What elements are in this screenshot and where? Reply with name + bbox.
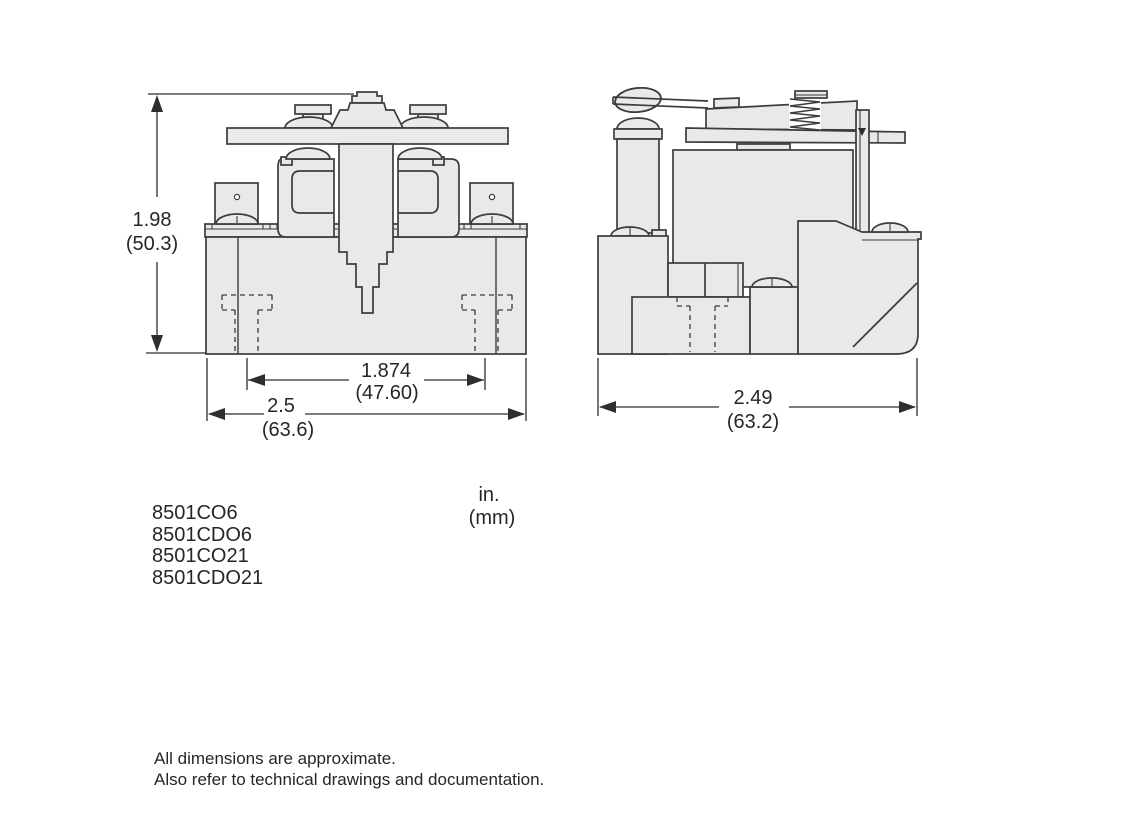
- middle-block: [745, 278, 798, 354]
- right-block: [798, 221, 921, 354]
- bracket-screw-left: [286, 148, 330, 159]
- dim-label-slot-mm: (47.60): [355, 382, 418, 404]
- crossbar: [227, 128, 508, 144]
- arrowhead-left: [599, 401, 616, 413]
- center-cam: [331, 103, 403, 128]
- front-view: [205, 92, 527, 354]
- washer-dome-right: [400, 117, 448, 128]
- model-list: 8501CO6 8501CDO6 8501CO21 8501CDO21: [152, 502, 263, 589]
- footnotes: All dimensions are approximate. Also ref…: [154, 749, 544, 789]
- units-mm: (mm): [469, 507, 516, 529]
- cylinder-post: [614, 118, 662, 233]
- footnote-line: Also refer to technical drawings and doc…: [154, 770, 544, 789]
- dim-label-width-in: 2.5: [267, 395, 295, 417]
- model-number: 8501CO6: [152, 502, 238, 524]
- arrowhead-left: [208, 408, 225, 420]
- contact-bracket-left: [278, 148, 334, 237]
- dimension-drawing: 1.98 (50.3) 1.874 (47.60) 2.5 (63.6) 2.4…: [0, 0, 1145, 815]
- dim-label-width-mm: (63.6): [262, 419, 314, 441]
- dim-label-depth-mm: (63.2): [727, 411, 779, 433]
- arrowhead-right: [508, 408, 525, 420]
- arrowhead-down: [151, 335, 163, 352]
- terminal-box: [668, 263, 743, 297]
- arrowhead-right: [467, 374, 484, 386]
- side-view: [598, 86, 921, 354]
- footnote-line: All dimensions are approximate.: [154, 749, 396, 768]
- model-number: 8501CO21: [152, 545, 249, 567]
- bracket-screw-right: [398, 148, 442, 159]
- model-number: 8501CDO6: [152, 524, 252, 546]
- armature-tab: [714, 98, 739, 108]
- front-base-block: [632, 297, 750, 354]
- dim-label-height-mm: (50.3): [126, 233, 178, 255]
- dim-label-slot-in: 1.874: [361, 360, 411, 382]
- arrowhead-left: [248, 374, 265, 386]
- cylinder-dome: [617, 118, 659, 129]
- support-bar: [686, 128, 905, 143]
- drawing-page: 1.98 (50.3) 1.874 (47.60) 2.5 (63.6) 2.4…: [0, 0, 1145, 815]
- vertical-rod: [856, 110, 869, 233]
- model-number: 8501CDO21: [152, 567, 263, 589]
- units-inches: in.: [478, 484, 499, 506]
- dim-side-depth: 2.49 (63.2): [598, 358, 917, 433]
- tab-hole-left: [234, 194, 239, 199]
- washer-dome-left: [285, 117, 333, 128]
- units-note: in. (mm): [469, 484, 516, 529]
- arrowhead-up: [151, 95, 163, 112]
- center-knob: [352, 92, 382, 103]
- dim-label-height-in: 1.98: [133, 209, 172, 231]
- tab-hole-right: [489, 194, 494, 199]
- arrowhead-right: [899, 401, 916, 413]
- dim-label-depth-in: 2.49: [734, 387, 773, 409]
- contact-bracket-right: [398, 148, 459, 237]
